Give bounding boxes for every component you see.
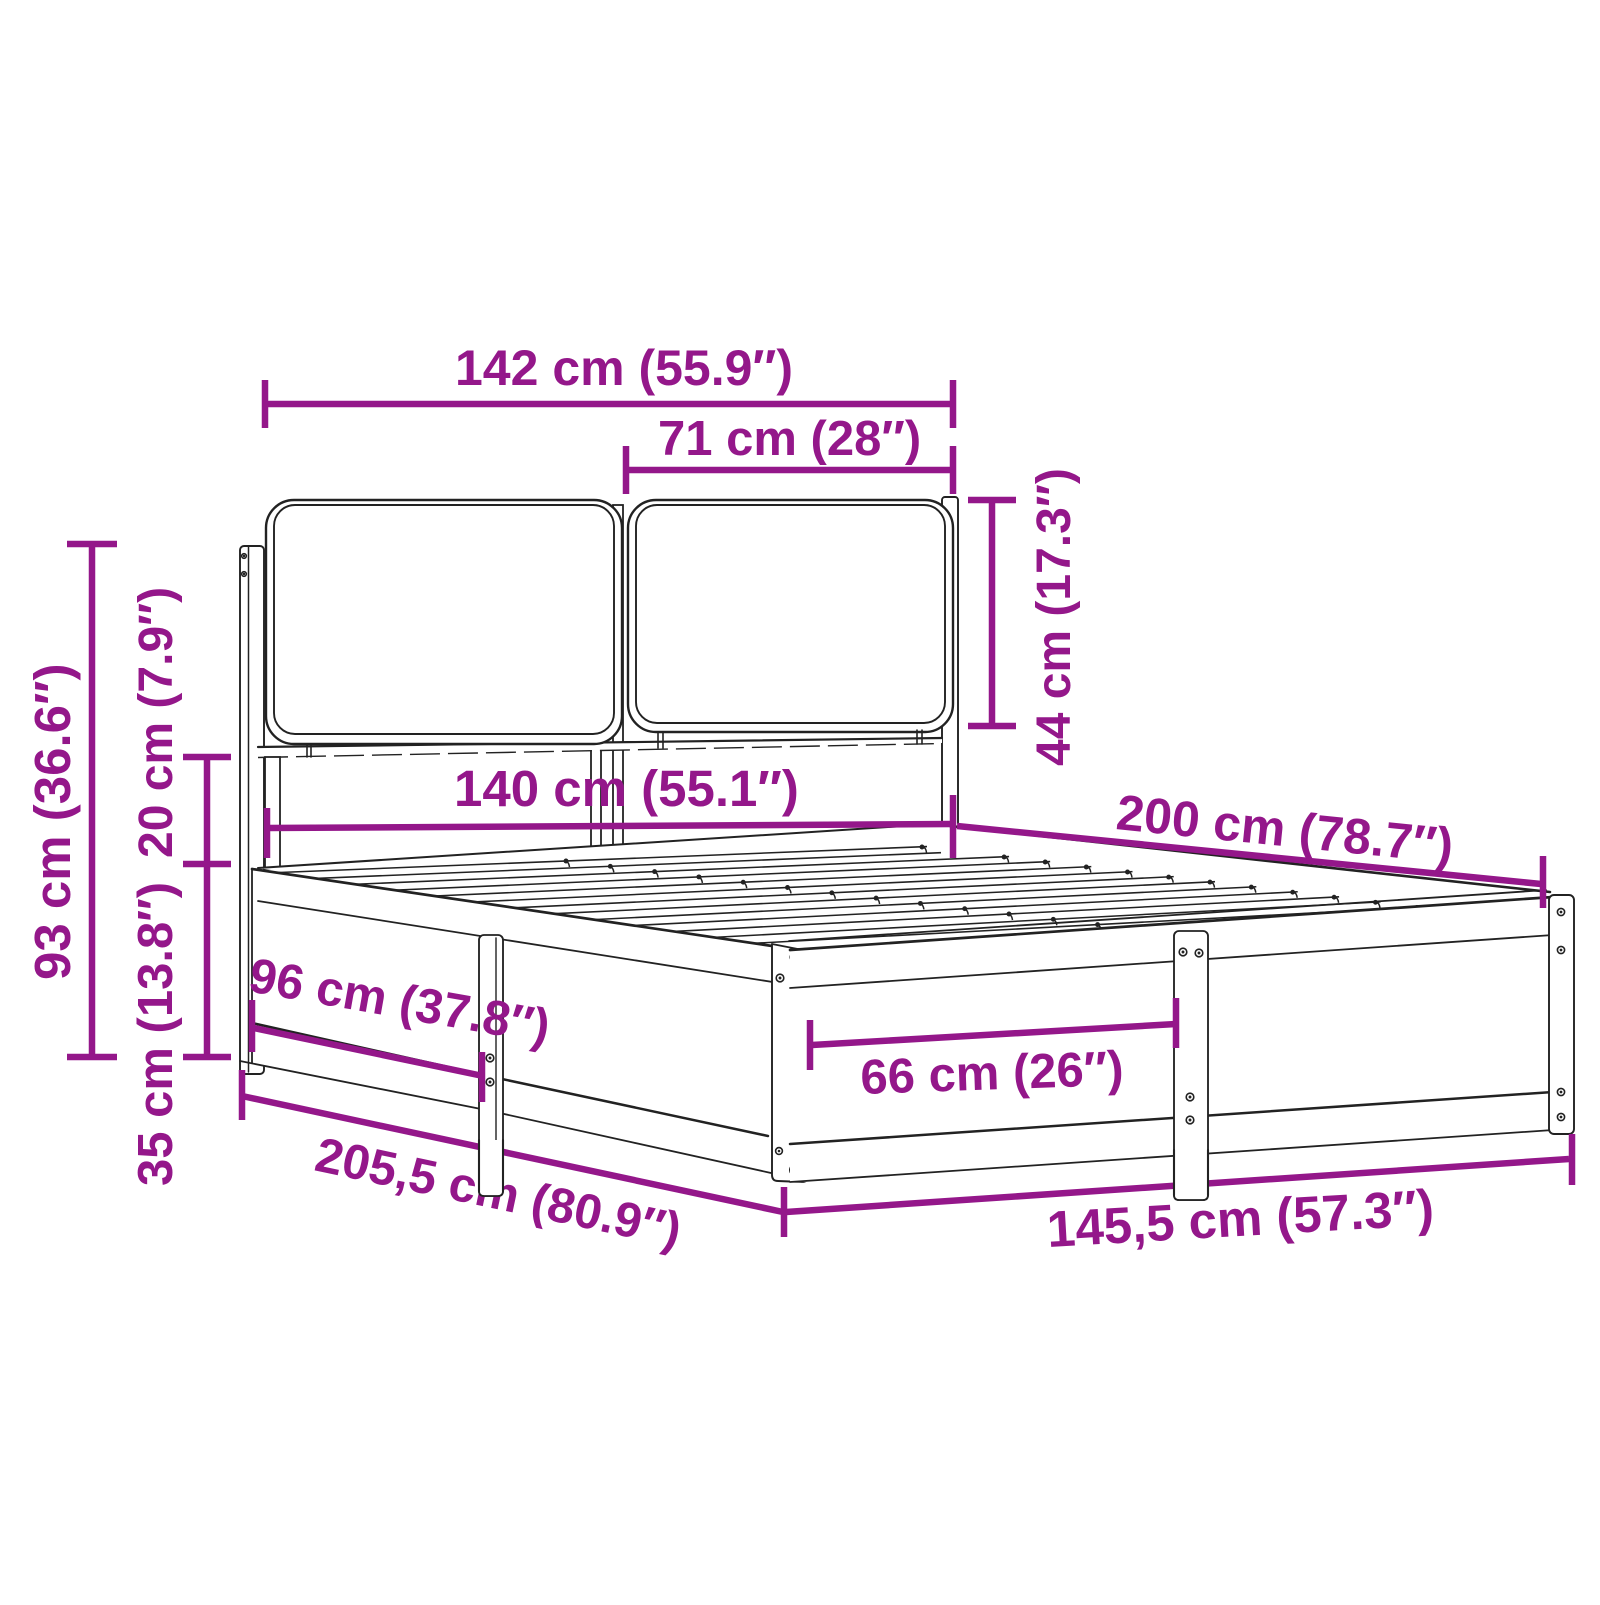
svg-text:142 cm (55.9″): 142 cm (55.9″) (455, 340, 793, 396)
svg-text:93 cm (36.6″): 93 cm (36.6″) (24, 664, 81, 980)
svg-text:66 cm (26″): 66 cm (26″) (859, 1042, 1124, 1105)
svg-text:44 cm (17.3″): 44 cm (17.3″) (1028, 468, 1081, 766)
svg-text:20 cm (7.9″): 20 cm (7.9″) (130, 587, 183, 858)
svg-text:140 cm (55.1″): 140 cm (55.1″) (454, 760, 799, 817)
svg-text:71 cm (28″): 71 cm (28″) (658, 412, 921, 466)
svg-text:35 cm (13.8″): 35 cm (13.8″) (129, 882, 183, 1186)
